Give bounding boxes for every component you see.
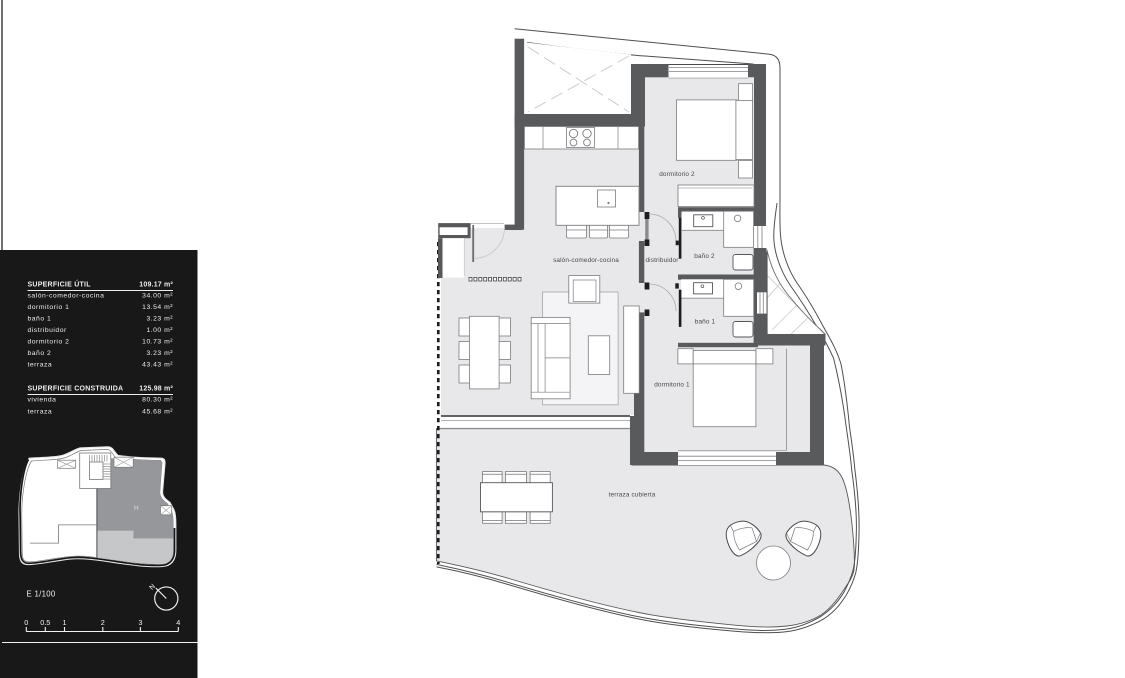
- svg-text:terraza: terraza: [28, 362, 53, 369]
- svg-text:dormitorio 1: dormitorio 1: [654, 382, 690, 389]
- svg-text:salón-comedor-cocina: salón-comedor-cocina: [28, 293, 105, 300]
- svg-text:baño 2: baño 2: [28, 350, 52, 357]
- svg-text:dormitorio 1: dormitorio 1: [28, 304, 70, 311]
- svg-text:2: 2: [101, 618, 105, 627]
- svg-text:45.68 m²: 45.68 m²: [142, 409, 173, 416]
- svg-text:10.73 m²: 10.73 m²: [142, 339, 173, 346]
- svg-text:baño 2: baño 2: [694, 253, 715, 260]
- svg-text:SUPERFICIE CONSTRUIDA: SUPERFICIE CONSTRUIDA: [28, 386, 124, 393]
- svg-text:43.43 m²: 43.43 m²: [142, 362, 173, 369]
- svg-text:distribuidor: distribuidor: [645, 257, 679, 264]
- svg-text:terraza cubierta: terraza cubierta: [609, 492, 656, 499]
- svg-text:terraza: terraza: [28, 409, 53, 416]
- svg-text:13.54 m²: 13.54 m²: [142, 304, 173, 311]
- svg-text:baño 1: baño 1: [28, 316, 52, 323]
- svg-text:dormitorio 2: dormitorio 2: [659, 171, 695, 178]
- svg-text:salón-comedor-cocina: salón-comedor-cocina: [553, 257, 619, 264]
- svg-text:80.30 m²: 80.30 m²: [142, 397, 173, 404]
- svg-text:vivienda: vivienda: [28, 397, 57, 404]
- svg-text:0: 0: [24, 618, 28, 627]
- svg-text:H: H: [134, 505, 139, 512]
- svg-text:distribuidor: distribuidor: [28, 327, 67, 334]
- svg-text:dormitorio 2: dormitorio 2: [28, 339, 70, 346]
- svg-text:109.17 m²: 109.17 m²: [139, 282, 173, 289]
- svg-text:3.23 m²: 3.23 m²: [146, 316, 173, 323]
- svg-text:34.00 m²: 34.00 m²: [142, 293, 173, 300]
- svg-text:4: 4: [176, 618, 180, 627]
- svg-text:3: 3: [138, 618, 142, 627]
- svg-text:125.98 m²: 125.98 m²: [139, 386, 173, 393]
- svg-text:baño 1: baño 1: [695, 319, 716, 326]
- svg-text:1: 1: [62, 618, 66, 627]
- svg-text:SUPERFICIE ÚTIL: SUPERFICIE ÚTIL: [28, 280, 92, 289]
- svg-text:1.00 m²: 1.00 m²: [146, 327, 173, 334]
- svg-text:E 1/100: E 1/100: [27, 590, 56, 599]
- svg-text:0.5: 0.5: [40, 618, 50, 627]
- svg-text:3.23 m²: 3.23 m²: [146, 350, 173, 357]
